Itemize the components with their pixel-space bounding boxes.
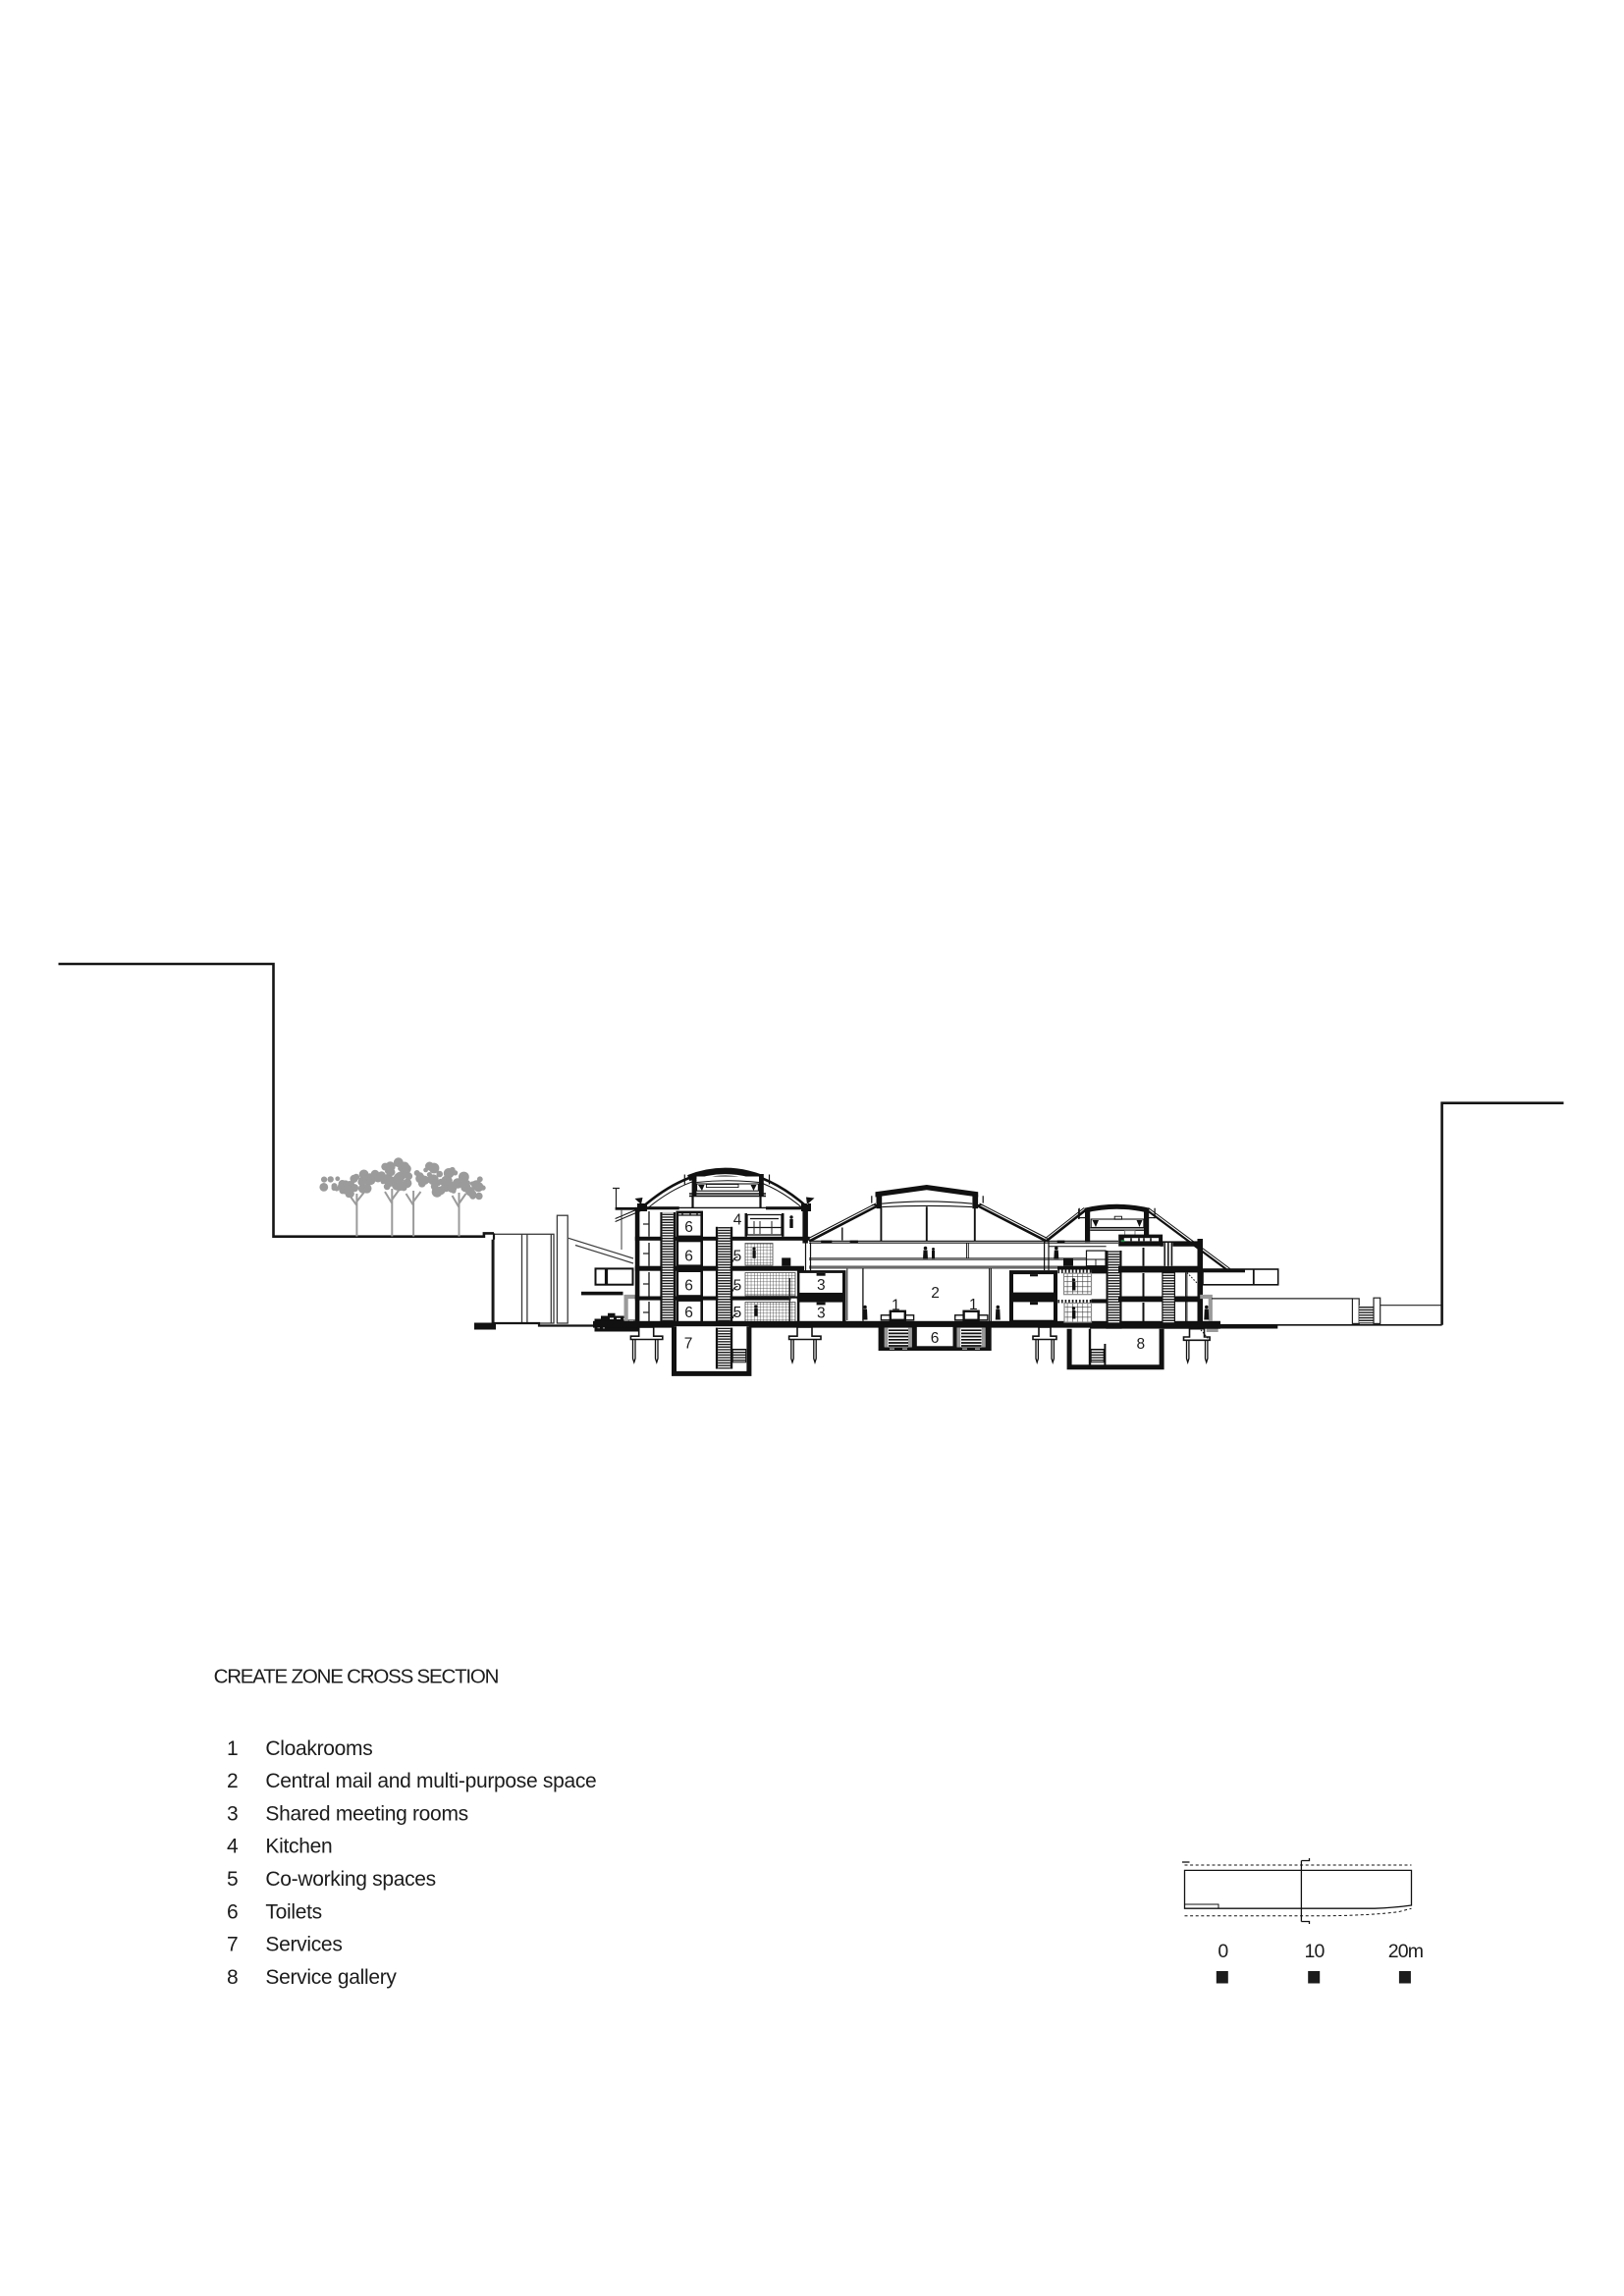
svg-text:20m: 20m bbox=[1388, 1941, 1424, 1962]
svg-text:3: 3 bbox=[817, 1306, 826, 1322]
svg-text:Service gallery: Service gallery bbox=[265, 1966, 397, 1989]
svg-text:6: 6 bbox=[684, 1249, 693, 1265]
svg-text:2: 2 bbox=[931, 1285, 940, 1302]
svg-text:8: 8 bbox=[227, 1966, 238, 1989]
svg-text:Kitchen: Kitchen bbox=[265, 1836, 332, 1858]
svg-text:Cloakrooms: Cloakrooms bbox=[265, 1737, 372, 1760]
svg-text:3: 3 bbox=[227, 1802, 238, 1825]
svg-text:6: 6 bbox=[684, 1219, 693, 1236]
svg-text:4: 4 bbox=[227, 1836, 239, 1858]
svg-text:Co-working spaces: Co-working spaces bbox=[265, 1868, 435, 1891]
svg-text:5: 5 bbox=[227, 1868, 238, 1891]
svg-text:Services: Services bbox=[265, 1934, 342, 1956]
svg-text:6: 6 bbox=[227, 1900, 238, 1923]
svg-text:Central mail and multi-purpose: Central mail and multi-purpose space bbox=[265, 1770, 596, 1792]
svg-text:0: 0 bbox=[1218, 1941, 1228, 1962]
svg-text:8: 8 bbox=[1136, 1336, 1145, 1353]
svg-text:7: 7 bbox=[227, 1934, 238, 1956]
svg-text:Toilets: Toilets bbox=[265, 1900, 321, 1923]
svg-text:Shared meeting rooms: Shared meeting rooms bbox=[265, 1802, 467, 1825]
svg-text:1: 1 bbox=[227, 1737, 238, 1760]
svg-text:3: 3 bbox=[817, 1277, 826, 1294]
svg-text:6: 6 bbox=[684, 1305, 693, 1321]
svg-text:6: 6 bbox=[931, 1330, 940, 1347]
svg-text:CREATE ZONE CROSS SECTION: CREATE ZONE CROSS SECTION bbox=[214, 1666, 499, 1688]
svg-text:10: 10 bbox=[1304, 1941, 1325, 1962]
svg-text:4: 4 bbox=[733, 1211, 742, 1228]
svg-text:7: 7 bbox=[684, 1336, 693, 1353]
svg-text:2: 2 bbox=[227, 1770, 238, 1792]
svg-text:6: 6 bbox=[684, 1278, 693, 1295]
